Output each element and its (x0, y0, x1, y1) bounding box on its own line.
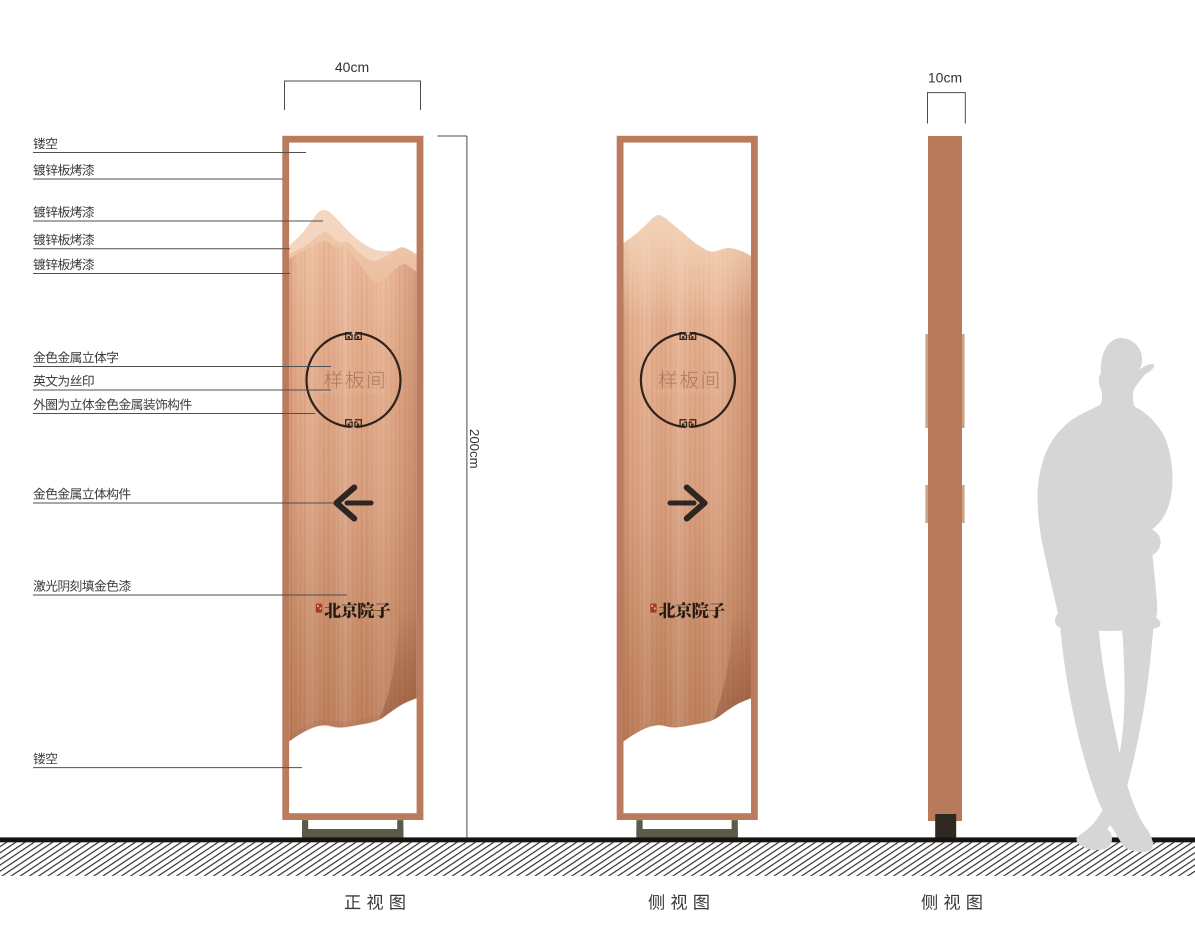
svg-text:40cm: 40cm (335, 59, 369, 75)
svg-text:200cm: 200cm (467, 429, 482, 469)
svg-text:SAMPLE ROOM DISPLAY: SAMPLE ROOM DISPLAY (653, 389, 723, 395)
svg-text:10cm: 10cm (928, 70, 962, 86)
